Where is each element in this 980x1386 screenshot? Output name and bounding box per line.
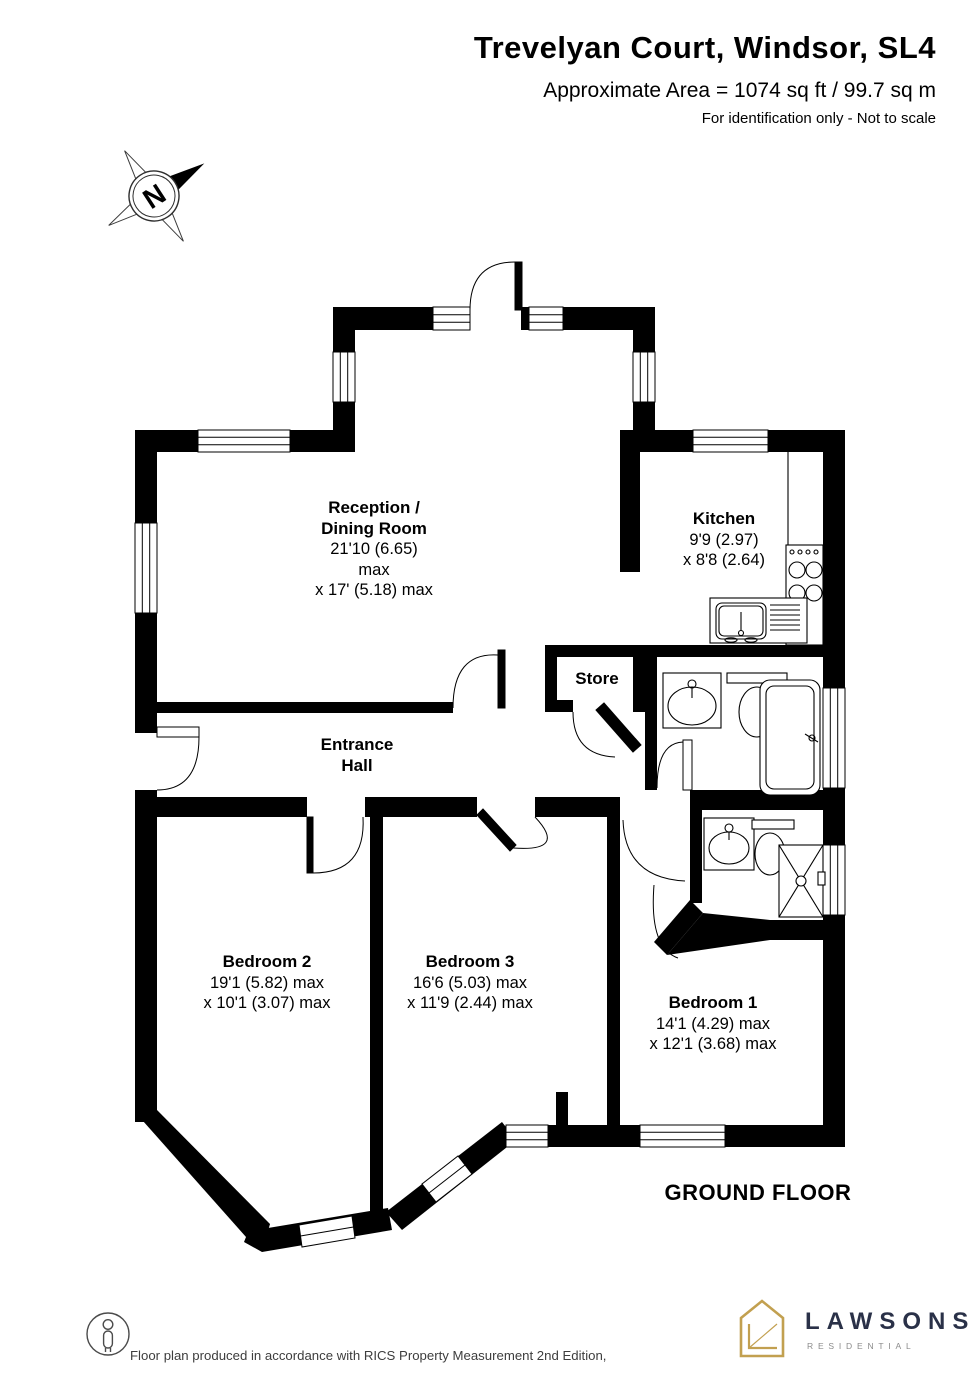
room-name-bedroom2: Bedroom 2 [182,952,352,973]
person-icon [85,1311,131,1357]
room-label-hall: Entrance Hall [314,735,400,776]
lawsons-logo: LAWSONS RESIDENTIAL [733,1298,975,1360]
room-label-bedroom1: Bedroom 1 14'1 (4.29) max x 12'1 (3.68) … [628,993,798,1054]
logo-brand: LAWSONS [805,1308,975,1336]
room-name-reception: Reception / Dining Room [315,498,433,539]
room-dim: 19'1 (5.82) max [182,973,352,993]
windows [135,307,845,1247]
floor-label: GROUND FLOOR [665,1180,852,1206]
floorplan-page: Trevelyan Court, Windsor, SL4 Approximat… [0,0,980,1386]
reception-door-leaf [498,650,505,708]
shower-tray [779,845,825,917]
entrance-door-arc [470,262,515,310]
room-dim: 16'6 (5.03) max [385,973,555,993]
room-dim: 9'9 (2.97) [644,530,804,550]
room-name-kitchen: Kitchen [644,509,804,530]
entrance-door-leaf [515,262,522,310]
kitchen-sink [710,598,807,643]
ensuite-basin [704,818,754,870]
compass-icon: N [79,118,233,271]
room-label-store: Store [552,669,642,690]
room-label-kitchen: Kitchen 9'9 (2.97) x 8'8 (2.64) [644,509,804,570]
footer-line1: Floor plan produced in accordance with R… [130,1347,732,1365]
bedroom3-door-leaf [477,809,516,851]
bedroom1-door-arc [623,820,685,881]
bathroom-door-arc [657,742,683,788]
lawsons-logo-text: LAWSONS RESIDENTIAL [805,1308,975,1351]
floorplan-drawing: N [0,0,980,1386]
room-label-bedroom2: Bedroom 2 19'1 (5.82) max x 10'1 (3.07) … [182,952,352,1013]
room-name-bedroom1: Bedroom 1 [628,993,798,1014]
room-name-store: Store [552,669,642,690]
room-dim: x 17' (5.18) max [315,580,433,600]
room-dim: x 12'1 (3.68) max [628,1034,798,1054]
bathtub [760,680,820,795]
logo-tagline: RESIDENTIAL [807,1341,975,1351]
side-door-leaf [157,727,199,737]
lawsons-house-icon [733,1298,791,1360]
bathroom-basin [663,673,721,728]
bedroom3-door-arc [513,817,547,848]
room-dim: 21'10 (6.65) max [315,539,433,579]
room-name-bedroom3: Bedroom 3 [385,952,555,973]
room-dim: x 11'9 (2.44) max [385,993,555,1013]
room-name-hall: Entrance Hall [314,735,400,776]
room-dim: x 10'1 (3.07) max [182,993,352,1013]
room-dim: x 8'8 (2.64) [644,550,804,570]
room-dim: 14'1 (4.29) max [628,1014,798,1034]
room-label-reception: Reception / Dining Room 21'10 (6.65) max… [315,498,433,600]
bedroom2-door-arc [313,817,363,873]
side-door-arc [157,737,199,790]
bathroom-door-leaf [683,740,692,790]
bedroom2-door-leaf [307,817,313,873]
reception-door-arc [453,655,498,708]
room-label-bedroom3: Bedroom 3 16'6 (5.03) max x 11'9 (2.44) … [385,952,555,1013]
footer-disclaimer: Floor plan produced in accordance with R… [130,1311,732,1386]
